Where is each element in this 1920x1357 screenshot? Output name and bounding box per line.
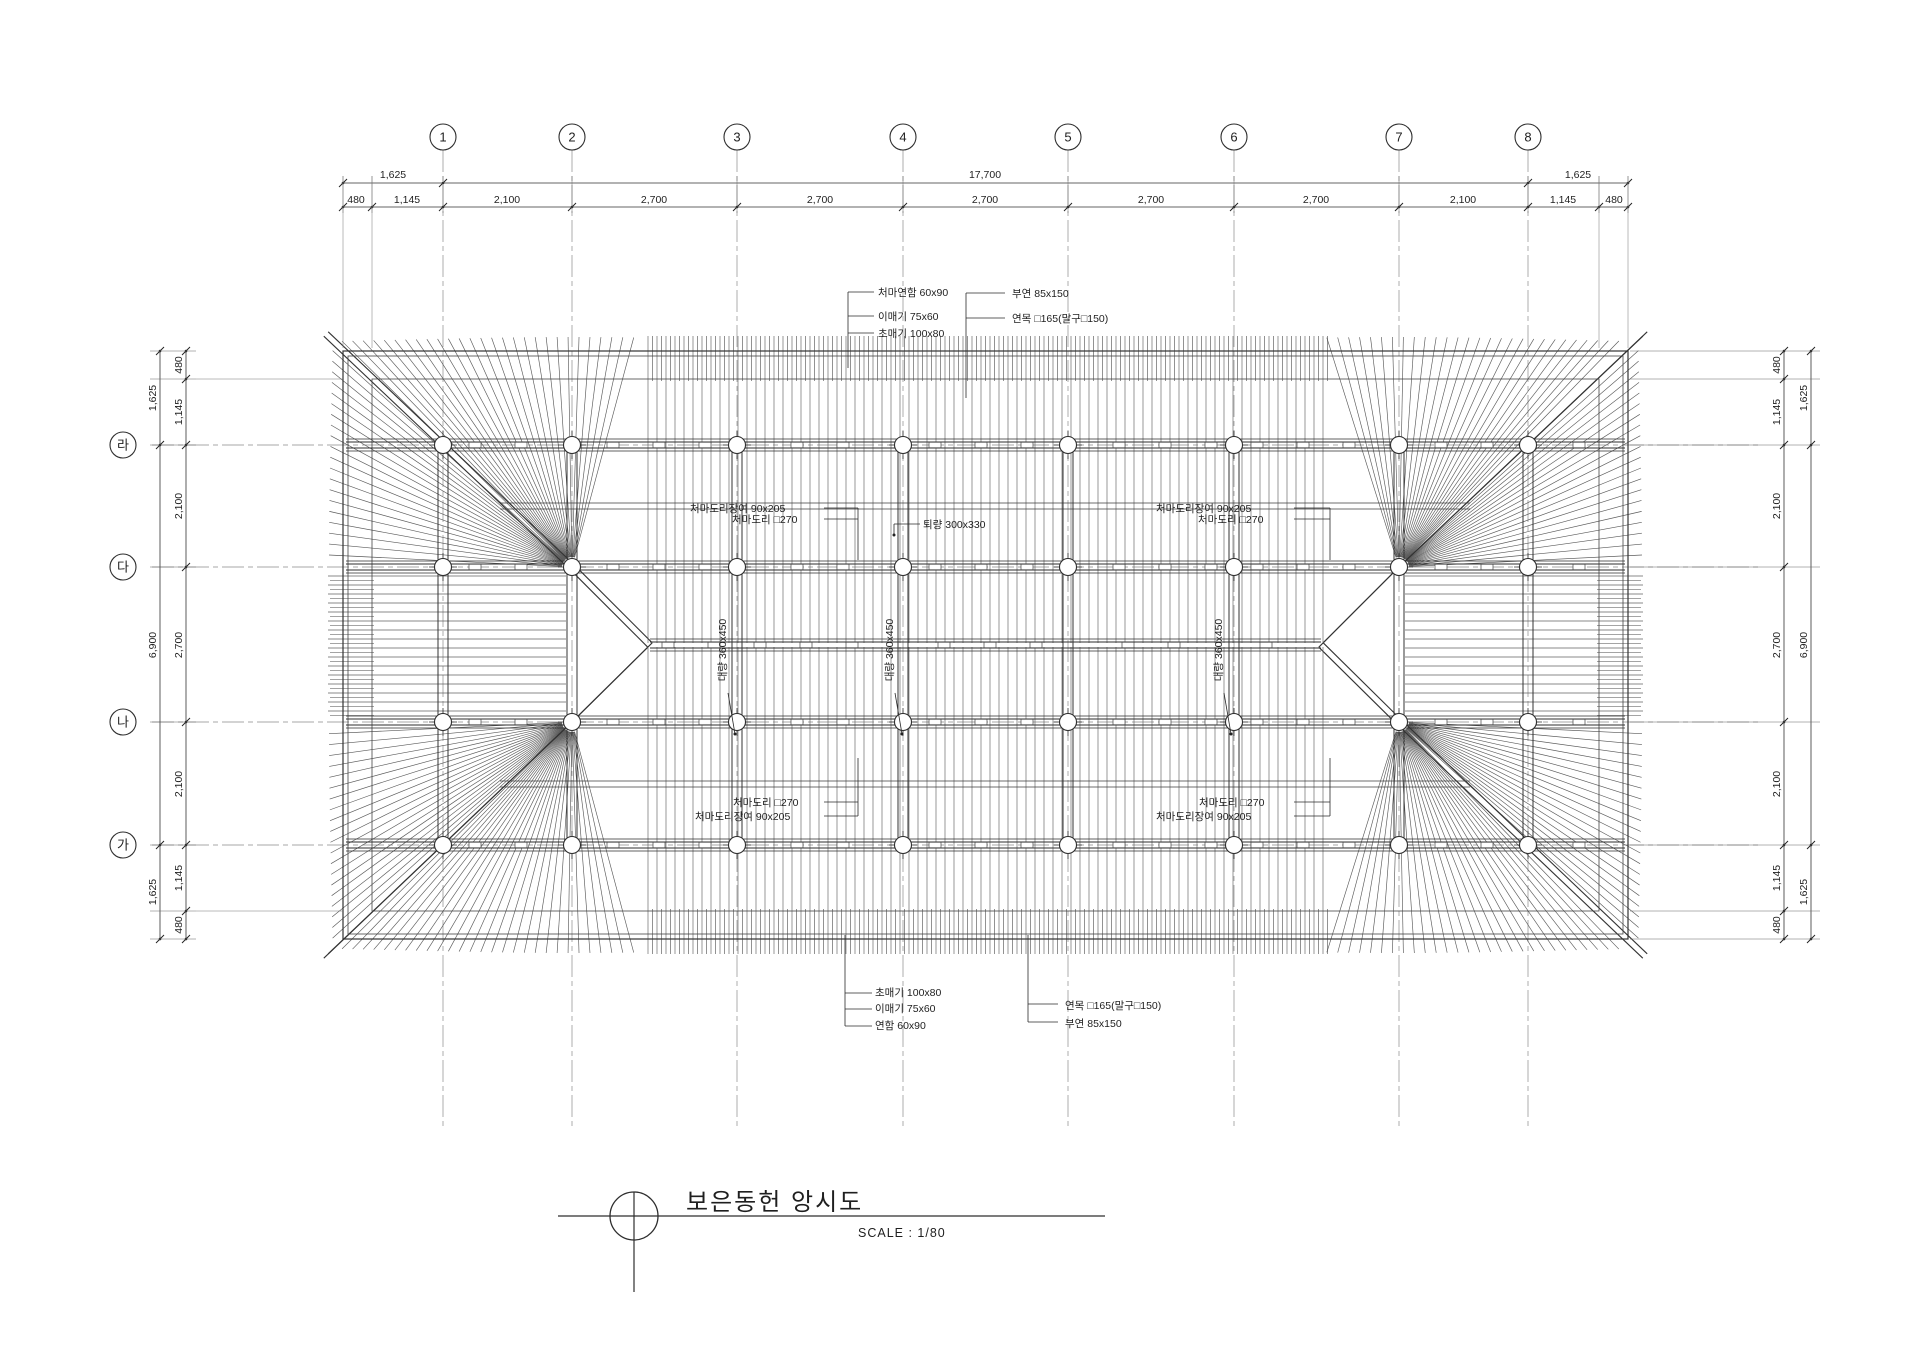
annotation-purlin: 처마도리 □270 [1199,797,1265,809]
grid-bubble-col-5: 5 [1055,124,1081,150]
dim-label: 1,145 [1771,399,1783,425]
annotation-daeryang-girder: 대량 360x450 [1213,619,1225,682]
dim-label: 2,700 [972,194,998,206]
dim-label: 480 [347,194,365,206]
top-dimensions: 1,625 17,700 1,625 480 1,145 2,100 2,700… [347,169,1623,206]
dim-label: 1,625 [1565,169,1591,181]
dim-label: 2,100 [1771,771,1783,797]
grid-bubble-label: 4 [899,130,906,145]
dim-label: 480 [173,356,185,374]
leader-lines [728,292,1330,1026]
dim-label: 1,625 [147,385,159,411]
annotation-daeryang-girder: 대량 360x450 [717,619,729,682]
dim-label: 1,145 [1550,194,1576,206]
dim-label: 6,900 [1798,632,1810,658]
dim-label: 480 [1771,916,1783,934]
grid-bubble-label: 8 [1524,130,1531,145]
dim-label: 2,100 [1450,194,1476,206]
drawing-sheet: 1 2 3 4 5 6 7 8 라 다 나 가 1,625 17,700 1,6… [0,0,1920,1357]
annotation-chomaegi: 초매기 100x80 [875,987,942,999]
drawing-scale: SCALE : 1/80 [858,1226,946,1240]
dim-label: 1,145 [1771,865,1783,891]
annotation-buyeon: 부연 85x150 [1012,288,1069,300]
dim-label: 2,100 [173,493,185,519]
grid-bubble-col-6: 6 [1221,124,1247,150]
dim-label: 1,625 [147,879,159,905]
dim-label: 480 [1605,194,1623,206]
grid-bubble-label: 다 [117,560,129,575]
dim-label: 2,700 [173,632,185,658]
dim-label: 2,700 [1138,194,1164,206]
dim-label: 1,145 [394,194,420,206]
dimension-lines [150,176,1820,943]
dim-label: 2,100 [1771,493,1783,519]
dim-label: 6,900 [147,632,159,658]
dim-label: 2,700 [1303,194,1329,206]
purlins [346,439,1625,851]
annotations: 처마연함 60x90 이매기 75x60 초매기 100x80 부연 85x15… [690,287,1265,1032]
left-dimensions: 1,625 6,900 1,625 480 1,145 2,100 2,700 … [147,356,185,934]
grid-bubble-row-na: 나 [110,709,136,735]
title-block: 보은동헌 앙시도 SCALE : 1/80 [686,1189,946,1240]
grid-bubble-col-8: 8 [1515,124,1541,150]
grid-bubble-col-7: 7 [1386,124,1412,150]
annotation-purlin: 처마도리 □270 [732,514,798,526]
dim-label: 1,145 [173,399,185,425]
drawing-title: 보은동헌 앙시도 [686,1189,863,1216]
grid-bubbles-top: 1 2 3 4 5 6 7 8 [430,124,1541,150]
annotation-yeonmok: 연목 □165(말구□150) [1012,313,1108,325]
annotation-chomaegi: 초매기 100x80 [878,328,945,340]
annotation-toeryang-beam: 퇴량 300x330 [923,519,986,531]
grid-bubble-col-4: 4 [890,124,916,150]
grid-bubble-label: 라 [117,438,129,453]
grid-bubble-label: 3 [733,130,740,145]
dim-label: 2,700 [641,194,667,206]
annotation-imaegi: 이매기 75x60 [875,1003,936,1015]
right-dimensions: 1,625 6,900 1,625 480 1,145 2,100 2,700 … [1771,356,1810,934]
annotation-daeryang-girder: 대량 360x450 [884,619,896,682]
dim-label: 1,625 [1798,879,1810,905]
dim-label: 2,700 [1771,632,1783,658]
dim-label: 2,700 [807,194,833,206]
grid-lines [152,150,1758,1130]
dim-label: 480 [173,916,185,934]
annotation-purlin: 처마도리 □270 [733,797,799,809]
annotation-purlin-support: 처마도리장여 90x205 [1156,811,1251,823]
grid-bubble-col-3: 3 [724,124,750,150]
dim-label: 1,625 [1798,385,1810,411]
annotation-purlin: 처마도리 □270 [1198,514,1264,526]
grid-bubble-label: 1 [439,130,446,145]
grid-bubble-col-1: 1 [430,124,456,150]
annotation-imaegi: 이매기 75x60 [878,311,939,323]
annotation-yeonham: 연함 60x90 [875,1020,926,1032]
annotation-buyeon: 부연 85x150 [1065,1018,1122,1030]
annotation-eave-fascia: 처마연함 60x90 [878,287,948,299]
dim-label: 480 [1771,356,1783,374]
annotation-yeonmok: 연목 □165(말구□150) [1065,1000,1161,1012]
dim-label: 1,145 [173,865,185,891]
grid-bubble-label: 7 [1395,130,1402,145]
grid-bubble-row-da: 다 [110,554,136,580]
grid-bubble-label: 6 [1230,130,1237,145]
grid-bubble-row-ga: 가 [110,832,136,858]
grid-bubbles-left: 라 다 나 가 [110,432,136,858]
grid-bubble-row-ra: 라 [110,432,136,458]
grid-bubble-label: 5 [1064,130,1071,145]
grid-bubble-label: 가 [117,838,129,853]
dim-label: 2,100 [173,771,185,797]
grid-bubble-col-2: 2 [559,124,585,150]
grid-bubble-label: 나 [117,715,129,730]
annotation-purlin-support: 처마도리장여 90x205 [695,811,790,823]
grid-bubble-label: 2 [568,130,575,145]
dim-label: 1,625 [380,169,406,181]
dim-label: 2,100 [494,194,520,206]
roof-framing-plan-drawing: 1 2 3 4 5 6 7 8 라 다 나 가 1,625 17,700 1,6… [0,0,1920,1357]
dim-label: 17,700 [969,169,1001,181]
